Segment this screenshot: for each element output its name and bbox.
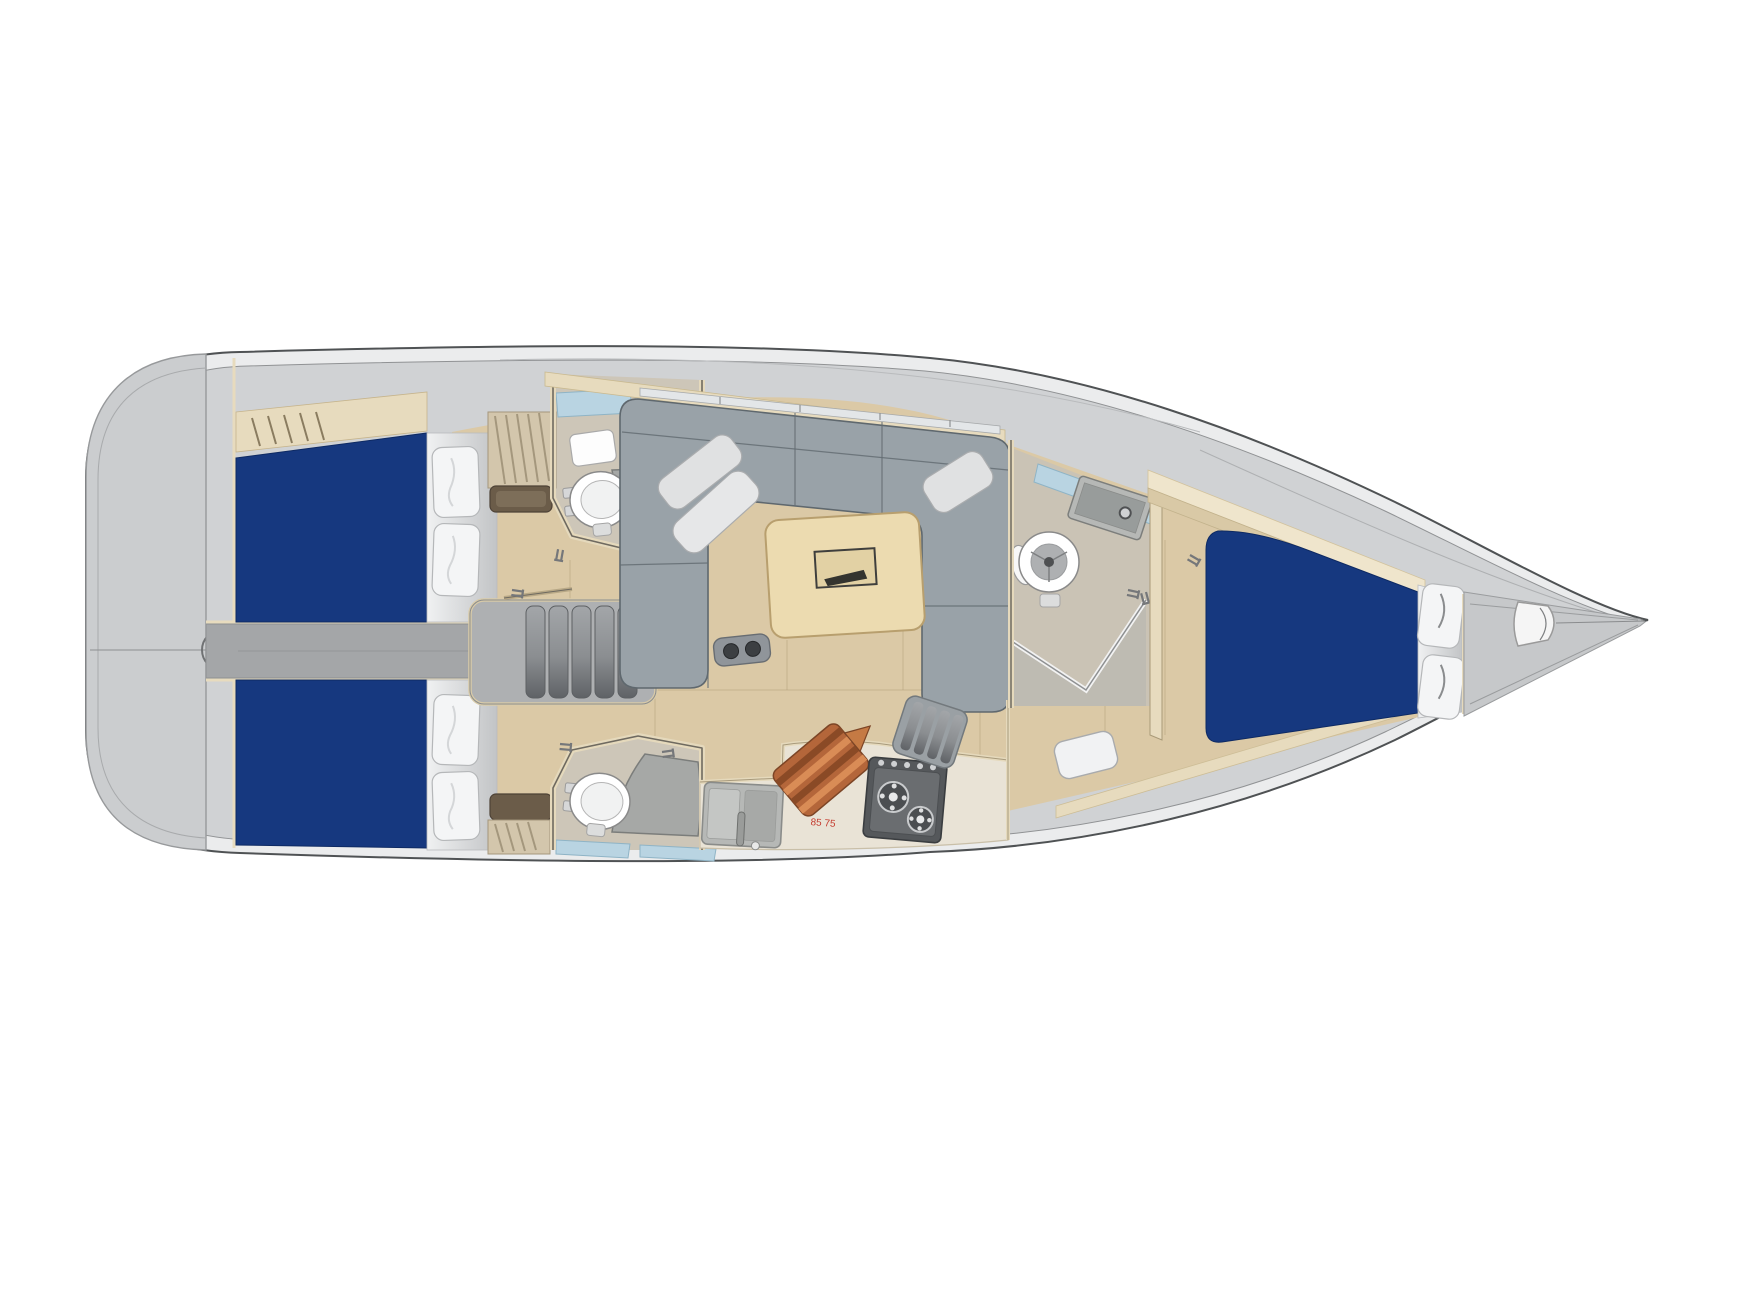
- pillow: [432, 446, 480, 518]
- faucet-icon: [736, 812, 745, 846]
- pillow: [1417, 654, 1466, 721]
- dark-locker-inner: [496, 491, 546, 507]
- bath-mat: [569, 429, 617, 467]
- dining-table: [765, 511, 926, 638]
- two-burner-stove: [863, 757, 948, 843]
- double-sink: [701, 782, 783, 851]
- hanging-locker: [488, 820, 550, 854]
- yacht-layout-plan: 85 75: [0, 0, 1754, 1315]
- double-berth: [236, 433, 427, 622]
- passage-bulkhead: [1150, 502, 1162, 740]
- pillow: [432, 523, 480, 597]
- pillow: [432, 694, 480, 766]
- pillow: [1416, 583, 1465, 650]
- double-berth: [236, 680, 427, 848]
- dark-locker: [490, 794, 552, 820]
- pillow: [432, 771, 480, 841]
- dimension-label: 85 75: [810, 817, 836, 830]
- yacht-layout-canvas: 85 75: [0, 0, 1754, 1315]
- magazine-bracket: [713, 633, 772, 667]
- transom-block: [86, 354, 206, 850]
- burner: [907, 806, 934, 833]
- stem-fitting: [1514, 602, 1554, 646]
- aft-cabin-starboard: [236, 680, 497, 850]
